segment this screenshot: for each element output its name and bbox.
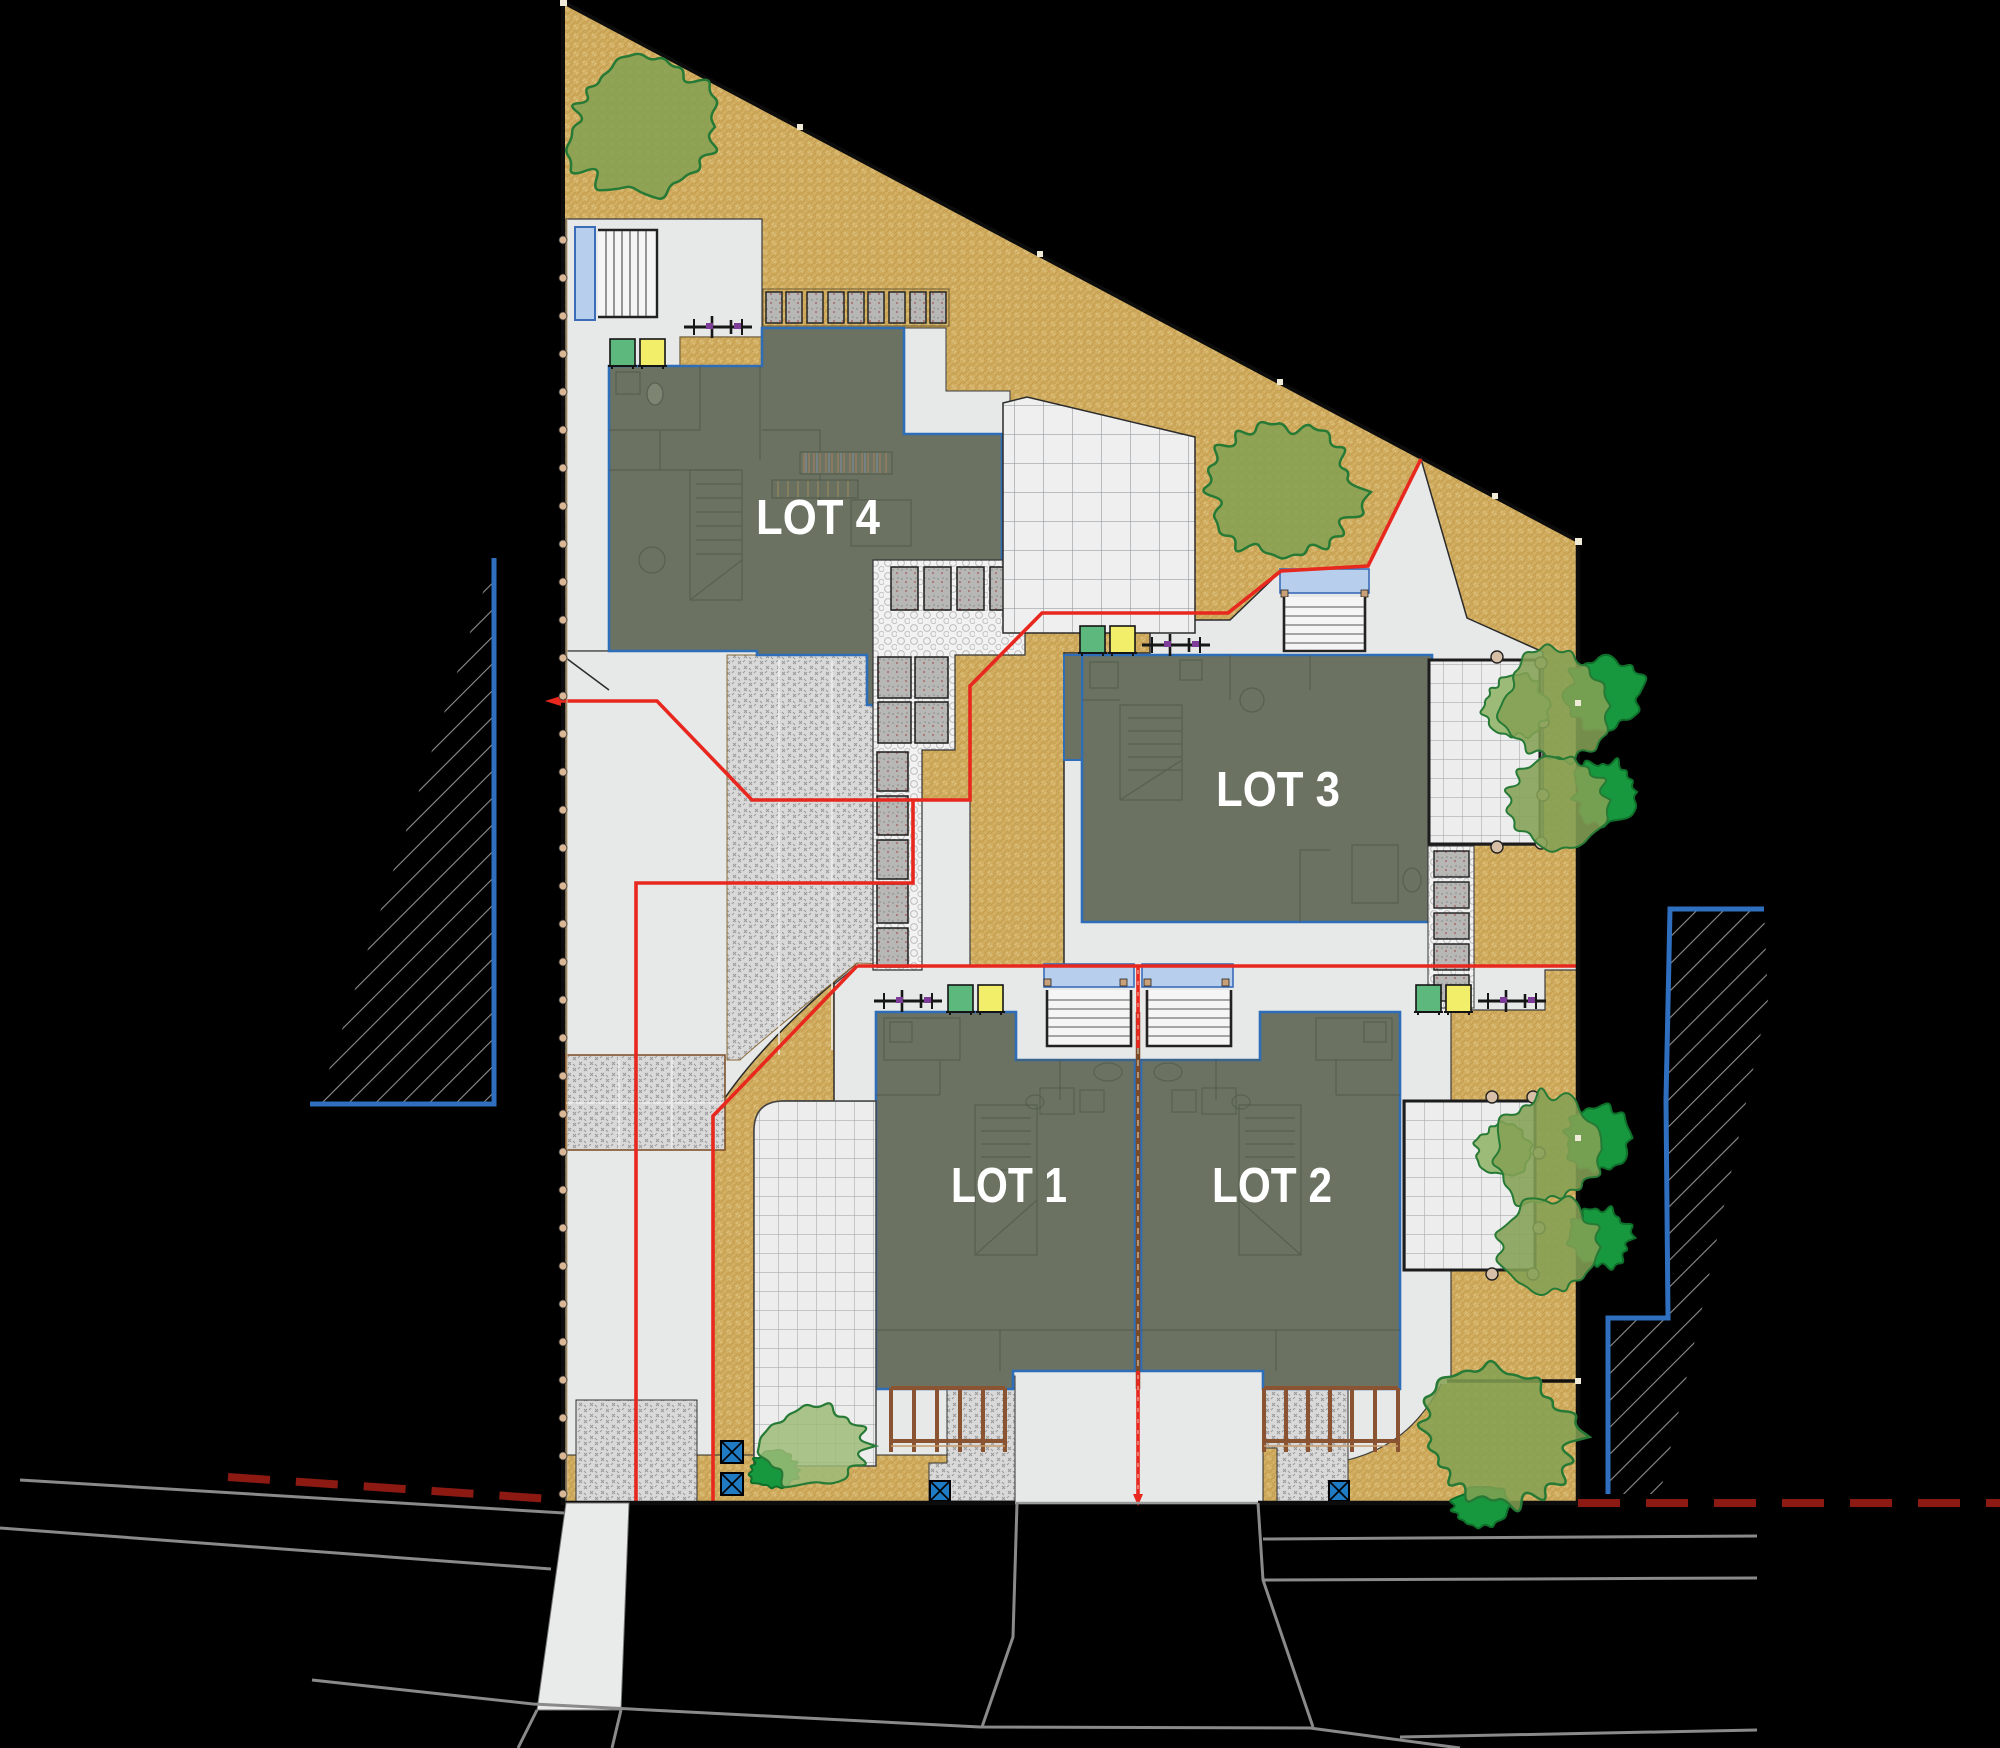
svg-text:LOT 1: LOT 1 [951, 1159, 1067, 1213]
svg-text:LOT 3: LOT 3 [1216, 763, 1340, 817]
svg-text:LOT 2: LOT 2 [1212, 1159, 1332, 1213]
svg-text:LOT 4: LOT 4 [756, 491, 880, 545]
